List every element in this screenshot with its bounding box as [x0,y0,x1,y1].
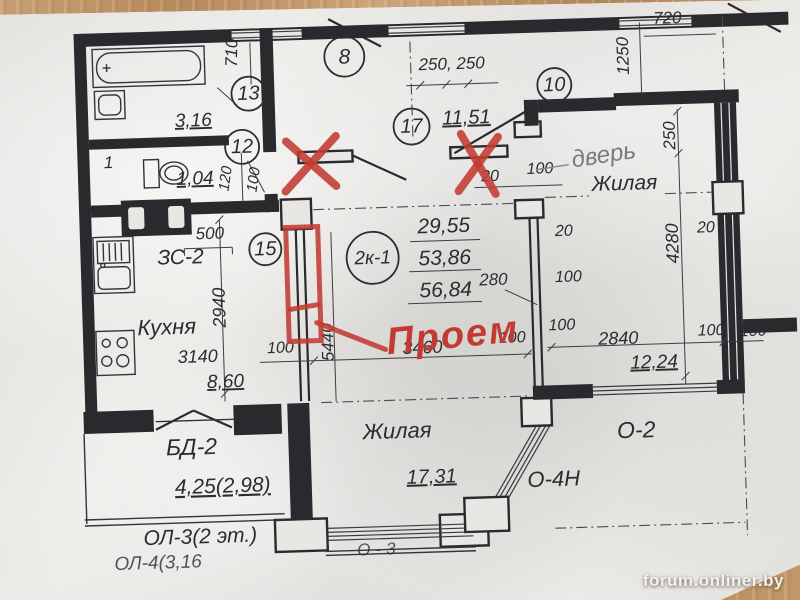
area-full: 56,84 [419,278,472,303]
kitchen-area: 8,60 [207,371,245,393]
bath-area: 3,16 [174,110,212,132]
plan-labels: 13 12 8 17 10 15 2к-1 3,16 1 1,04 11,51 … [98,6,774,575]
callout-17: 17 [400,115,424,138]
angled-window [461,397,555,532]
photo-of-floor-plan: 13 12 8 17 10 15 2к-1 3,16 1 1,04 11,51 … [0,0,800,600]
dim-2940: 2940 [209,287,230,329]
dim-100-wall: 100 [555,268,582,286]
balcony-door-code: БД-2 [166,433,218,461]
kitchen-sink [93,236,135,293]
living-right-area: 12,24 [630,351,678,373]
dim-720: 720 [653,8,682,28]
loggia-code-next: ОЛ-4(3,16 [114,551,202,575]
kitchen-name: Кухня [137,313,197,340]
dim-710: 710 [222,38,242,67]
red-x-left [284,136,338,192]
living-bottom-name: Жилая [361,417,432,444]
red-x-right [457,133,500,195]
window-bottom-code: О-3 [357,539,401,559]
callout-10: 10 [543,74,566,97]
wc-number: 1 [104,153,114,172]
entry-unit-code: ЗС-2 [157,245,204,269]
window-right-code: О-2 [617,416,656,443]
dim-100-a: 100 [548,317,575,335]
dim-4280: 4280 [662,223,683,264]
dim-20-right: 20 [696,219,715,237]
loggia-code: ОЛ-3(2 эт.) [143,524,257,551]
dim-500: 500 [195,223,224,243]
balcony-door-leaves [155,409,234,429]
dim-1250: 1250 [613,36,633,75]
balcony-area: 4,25(2,98) [175,473,271,499]
dim-250x2: 250, 250 [417,53,485,74]
dim-280: 280 [478,270,508,290]
column-block [712,181,743,214]
bath-sink [94,91,125,120]
dim-120: 120 [215,164,235,192]
callout-13: 13 [237,82,260,105]
watermark: forum.onliner.by [643,571,784,591]
hall-area: 11,51 [442,106,491,130]
dim-2840: 2840 [597,328,639,349]
living-bottom-area: 17,31 [406,465,457,489]
dim-100-e: 100 [740,323,767,341]
callout-8: 8 [338,45,351,68]
area-living-total: 29,55 [416,214,471,239]
area-total: 53,86 [418,246,472,271]
wc-area: 1,04 [176,168,214,190]
dim-3140: 3140 [177,346,218,367]
dim-100-wc: 100 [244,166,264,194]
stove [96,330,135,375]
pencil-door-note: дверь [570,137,638,174]
dim-250: 250 [660,120,680,150]
living-right-name: Жилая [590,171,657,196]
entrance-door [121,199,192,237]
dim-100-d: 100 [698,322,725,340]
window-angled-code: О-4Н [527,465,580,492]
dim-20-wall: 20 [554,223,573,241]
floor-plan-drawing: 13 12 8 17 10 15 2к-1 3,16 1 1,04 11,51 … [0,0,800,600]
callout-12: 12 [231,136,254,159]
bathtub [92,46,205,87]
callout-15: 15 [254,238,278,261]
red-annotations: Проем [283,130,521,366]
unit-id: 2к-1 [353,247,391,269]
